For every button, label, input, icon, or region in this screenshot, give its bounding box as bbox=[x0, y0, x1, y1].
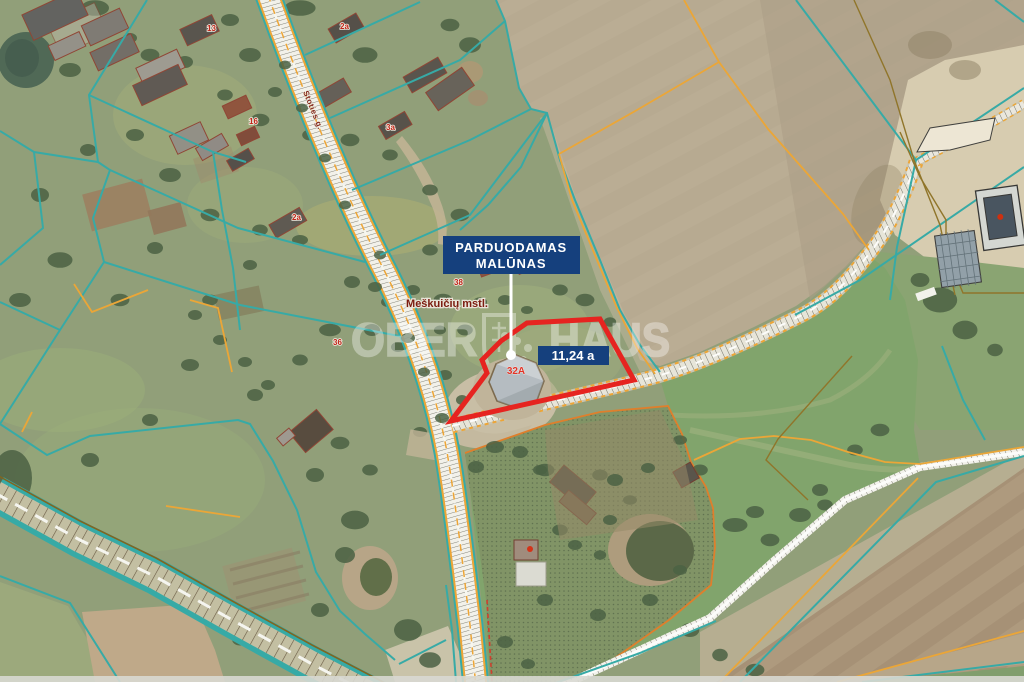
svg-text:36: 36 bbox=[333, 338, 342, 347]
svg-text:Meškuičių mstl.: Meškuičių mstl. bbox=[406, 298, 488, 310]
svg-text:2a: 2a bbox=[340, 22, 349, 31]
svg-text:MALŪNAS: MALŪNAS bbox=[476, 256, 547, 271]
svg-text:3a: 3a bbox=[386, 123, 395, 132]
svg-text:13: 13 bbox=[207, 24, 216, 33]
svg-text:11,24 a: 11,24 a bbox=[552, 348, 595, 363]
svg-text:38: 38 bbox=[454, 278, 463, 287]
svg-text:PARDUODAMAS: PARDUODAMAS bbox=[455, 240, 567, 255]
svg-text:2a: 2a bbox=[292, 213, 301, 222]
svg-text:OBER: OBER bbox=[351, 314, 477, 367]
svg-text:32A: 32A bbox=[507, 366, 525, 377]
svg-text:16: 16 bbox=[249, 117, 258, 126]
